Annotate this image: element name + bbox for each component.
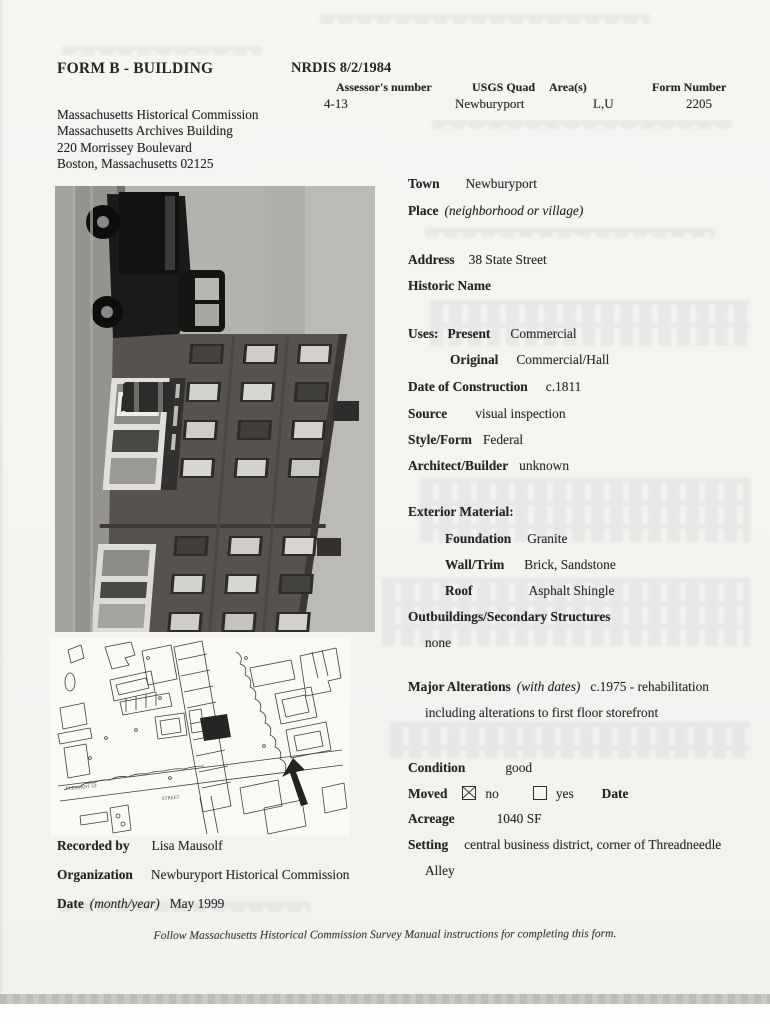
organization-label: Organization bbox=[57, 867, 133, 882]
field-historic-name: Historic Name bbox=[408, 278, 491, 294]
architect-builder-value: unknown bbox=[519, 458, 569, 473]
wall-trim-label: Wall/Trim bbox=[445, 557, 504, 572]
present-value: Commercial bbox=[510, 326, 576, 341]
acreage-label: Acreage bbox=[408, 811, 455, 826]
recorded-by-value: Lisa Mausolf bbox=[152, 838, 223, 853]
acreage-value: 1040 SF bbox=[497, 811, 542, 826]
setting-label: Setting bbox=[408, 837, 448, 852]
field-setting: Settingcentral business district, corner… bbox=[408, 837, 721, 853]
place-note: (neighborhood or village) bbox=[444, 203, 583, 218]
field-roof: RoofAsphalt Shingle bbox=[445, 583, 614, 599]
field-uses-original: OriginalCommercial/Hall bbox=[450, 352, 609, 368]
field-place: Place(neighborhood or village) bbox=[408, 203, 583, 219]
field-major-alterations: Major Alterations(with dates)c.1975 - re… bbox=[408, 679, 709, 695]
date-recorded-value: May 1999 bbox=[170, 896, 225, 911]
moved-label: Moved bbox=[408, 786, 447, 801]
field-source: Sourcevisual inspection bbox=[408, 406, 566, 422]
moved-yes-label: yes bbox=[556, 786, 574, 801]
field-outbuildings: Outbuildings/Secondary Structures bbox=[408, 609, 611, 625]
agency-line: Massachusetts Archives Building bbox=[57, 123, 258, 139]
field-exterior-material: Exterior Material: bbox=[408, 504, 514, 520]
foundation-value: Granite bbox=[527, 531, 567, 546]
agency-line: Massachusetts Historical Commission bbox=[57, 107, 258, 123]
date-recorded-note: (month/year) bbox=[90, 896, 160, 911]
scan-edge-band bbox=[0, 994, 770, 1004]
town-label: Town bbox=[408, 176, 440, 191]
date-of-construction-value: c.1811 bbox=[546, 379, 582, 394]
nrdis-stamp: NRDIS 8/2/1984 bbox=[291, 60, 391, 77]
setting-value-line2: Alley bbox=[425, 863, 455, 878]
moved-no-label: no bbox=[485, 786, 498, 801]
outbuildings-value: none bbox=[425, 635, 451, 650]
roof-label: Roof bbox=[445, 583, 473, 598]
organization-value: Newburyport Historical Commission bbox=[151, 867, 350, 882]
major-alterations-value-line2: including alterations to first floor sto… bbox=[425, 705, 658, 720]
field-outbuildings-value: none bbox=[425, 635, 451, 651]
form-number-label: Form Number bbox=[652, 80, 726, 95]
form-number-value: 2205 bbox=[686, 96, 712, 112]
footer-instruction: Follow Massachusetts Historical Commissi… bbox=[0, 926, 770, 942]
original-label: Original bbox=[450, 352, 498, 367]
assessors-number-label: Assessor's number bbox=[336, 80, 432, 95]
field-address: Address38 State Street bbox=[408, 252, 547, 268]
place-label: Place bbox=[408, 203, 438, 218]
field-setting-line2: Alley bbox=[425, 863, 455, 879]
scanned-form-page: FORM B - BUILDING NRDIS 8/2/1984 Assesso… bbox=[0, 0, 770, 1024]
address-label: Address bbox=[408, 252, 455, 267]
agency-address-block: Massachusetts Historical Commission Mass… bbox=[57, 107, 258, 173]
date-of-construction-label: Date of Construction bbox=[408, 379, 528, 394]
field-foundation: FoundationGranite bbox=[445, 531, 567, 547]
field-uses-present: Uses:PresentCommercial bbox=[408, 326, 577, 342]
exterior-material-label: Exterior Material: bbox=[408, 504, 514, 519]
condition-label: Condition bbox=[408, 760, 465, 775]
form-title: FORM B - BUILDING bbox=[57, 60, 213, 78]
moved-no-checkbox bbox=[462, 786, 476, 800]
field-wall-trim: Wall/TrimBrick, Sandstone bbox=[445, 557, 616, 573]
agency-line: Boston, Massachusetts 02125 bbox=[57, 156, 258, 172]
bleed-through-artifact bbox=[320, 14, 650, 24]
areas-label: Area(s) bbox=[549, 80, 587, 95]
major-alterations-label: Major Alterations bbox=[408, 679, 511, 694]
condition-value: good bbox=[505, 760, 532, 775]
historic-name-label: Historic Name bbox=[408, 278, 491, 293]
field-recorded-by: Recorded byLisa Mausolf bbox=[57, 838, 223, 854]
town-value: Newburyport bbox=[466, 176, 537, 191]
bleed-through-artifact bbox=[390, 722, 750, 758]
bleed-through-artifact bbox=[62, 46, 262, 55]
wall-trim-value: Brick, Sandstone bbox=[524, 557, 616, 572]
source-value: visual inspection bbox=[475, 406, 565, 421]
style-form-value: Federal bbox=[483, 432, 523, 447]
field-major-alterations-line2: including alterations to first floor sto… bbox=[425, 705, 658, 721]
bleed-through-artifact bbox=[425, 228, 715, 237]
usgs-quad-label: USGS Quad bbox=[472, 80, 535, 95]
present-label: Present bbox=[448, 326, 491, 341]
original-value: Commercial/Hall bbox=[516, 352, 609, 367]
moved-yes-checkbox bbox=[533, 786, 547, 800]
style-form-label: Style/Form bbox=[408, 432, 472, 447]
date-recorded-label: Date bbox=[57, 896, 84, 911]
outbuildings-label: Outbuildings/Secondary Structures bbox=[408, 609, 611, 624]
usgs-quad-value: Newburyport bbox=[455, 96, 524, 112]
recorded-by-label: Recorded by bbox=[57, 838, 130, 853]
roof-value: Asphalt Shingle bbox=[529, 583, 615, 598]
assessors-number-value: 4-13 bbox=[324, 96, 348, 112]
scan-edge-artifact bbox=[0, 0, 4, 996]
field-architect-builder: Architect/Builderunknown bbox=[408, 458, 569, 474]
field-town: TownNewburyport bbox=[408, 176, 537, 192]
major-alterations-value: c.1975 - rehabilitation bbox=[590, 679, 709, 694]
building-photo-illustration bbox=[55, 186, 375, 632]
locator-map: PLEASANT ST STREET bbox=[50, 638, 350, 836]
agency-line: 220 Morrissey Boulevard bbox=[57, 140, 258, 156]
subject-parcel bbox=[200, 714, 231, 741]
field-date-recorded: Date(month/year)May 1999 bbox=[57, 896, 224, 912]
areas-value: L,U bbox=[593, 96, 614, 112]
bleed-through-artifact bbox=[432, 120, 732, 129]
setting-value: central business district, corner of Thr… bbox=[464, 837, 721, 852]
uses-label: Uses: bbox=[408, 326, 439, 341]
field-moved: MovednoyesDate bbox=[408, 786, 628, 802]
architect-builder-label: Architect/Builder bbox=[408, 458, 508, 473]
moved-date-label: Date bbox=[602, 786, 629, 801]
field-acreage: Acreage1040 SF bbox=[408, 811, 542, 827]
scan-bottom-margin bbox=[0, 1004, 770, 1024]
field-organization: OrganizationNewburyport Historical Commi… bbox=[57, 867, 350, 883]
address-value: 38 State Street bbox=[469, 252, 547, 267]
field-condition: Conditiongood bbox=[408, 760, 532, 776]
source-label: Source bbox=[408, 406, 447, 421]
major-alterations-note: (with dates) bbox=[517, 679, 581, 694]
building-photograph bbox=[55, 186, 375, 632]
field-date-of-construction: Date of Constructionc.1811 bbox=[408, 379, 581, 395]
foundation-label: Foundation bbox=[445, 531, 511, 546]
field-style-form: Style/FormFederal bbox=[408, 432, 523, 448]
